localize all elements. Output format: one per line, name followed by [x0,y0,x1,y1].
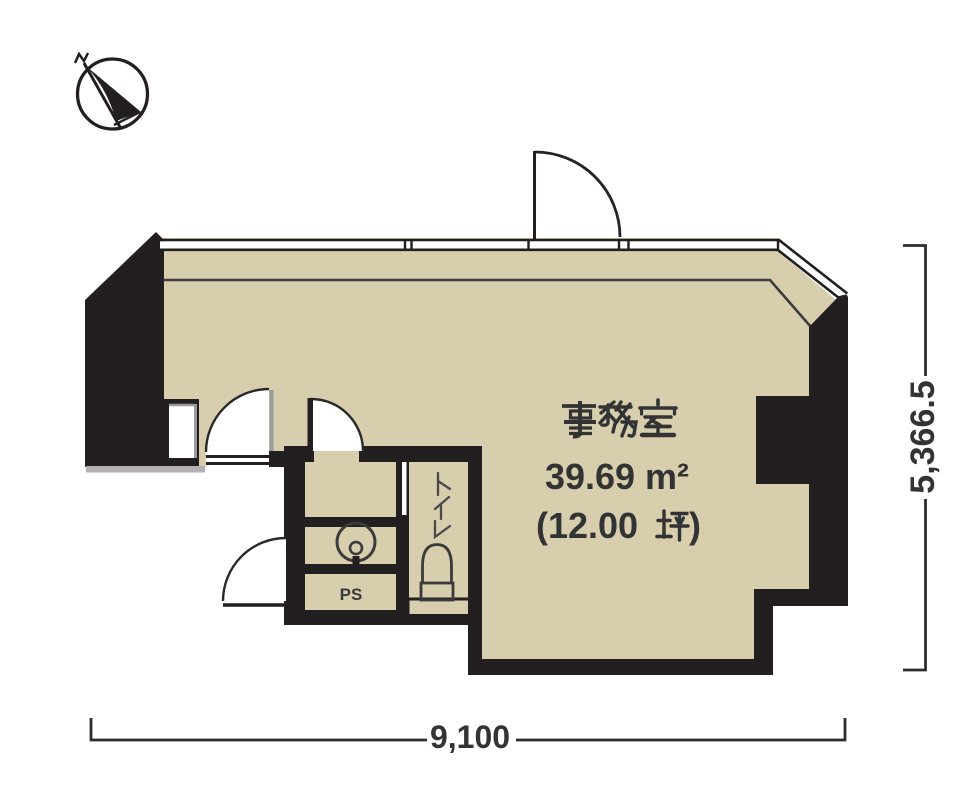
svg-text:5,366.5: 5,366.5 [904,380,942,493]
svg-text:): ) [689,505,701,546]
svg-text:PS: PS [340,585,363,604]
svg-text:9,100: 9,100 [430,719,510,755]
svg-text:(12.00: (12.00 [536,505,638,546]
svg-text:39.69 m²: 39.69 m² [545,456,689,497]
